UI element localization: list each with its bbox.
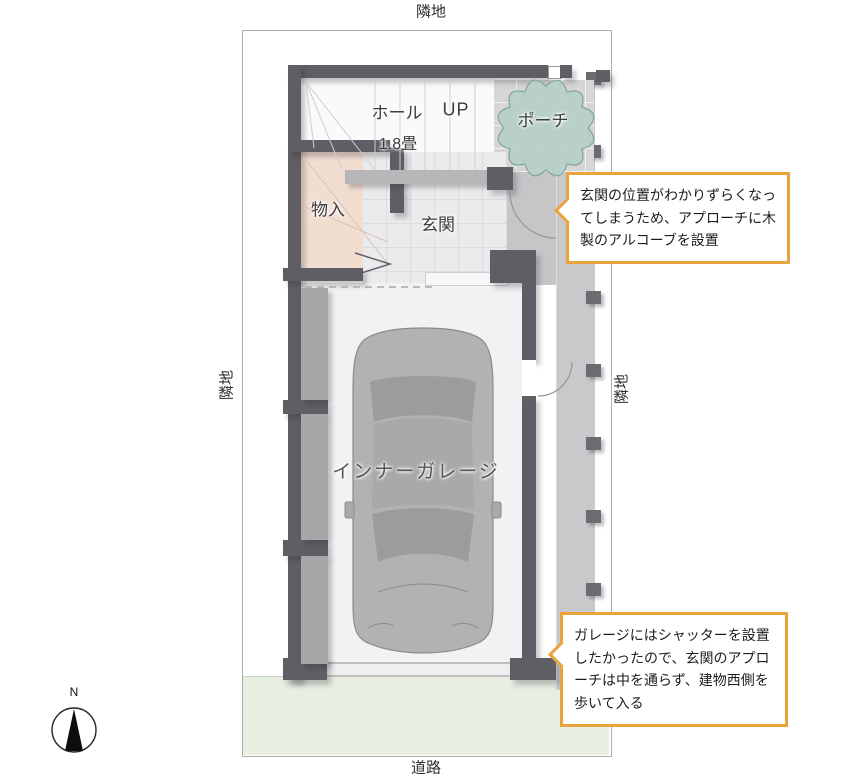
north-neighbor-label: 隣地: [416, 1, 446, 22]
wall-south-east: [510, 658, 556, 680]
wall-storage-bottom: [283, 268, 363, 281]
fence-post: [586, 437, 601, 450]
compass-north-label: N: [70, 685, 79, 699]
wall-west-pier1: [283, 400, 328, 414]
fence-post: [586, 364, 601, 377]
stairs-up-label: UP: [442, 100, 469, 121]
wall-entrance-pier: [487, 167, 513, 190]
road-label: 道路: [411, 757, 441, 778]
garage-side-door: [522, 360, 536, 396]
storage-label: 物入: [311, 196, 345, 221]
entrance-label: 玄関: [421, 211, 455, 236]
garage-label: インナーガレージ: [332, 457, 500, 484]
wall-north-stub: [560, 65, 572, 78]
wall-west-pier2: [283, 540, 328, 556]
garage-shelf-panel: [301, 414, 328, 540]
porch-post: [596, 70, 610, 82]
compass: [50, 704, 100, 756]
floor-plan-page: ホール 1.8畳 UP ポーチ 物入 玄関 インナーガレージ 隣地 道路 隣地 …: [0, 0, 867, 780]
fence-post: [586, 291, 601, 304]
garage-shelf-panel: [301, 556, 328, 664]
garage-shutter-callout: ガレージにはシャッターを設置したかったので、玄関のアプローチは中を通らず、建物西…: [560, 612, 788, 727]
hall-label: ホール: [372, 99, 423, 124]
east-neighbor-label: 隣地: [611, 374, 632, 404]
wall-east-upper: [522, 283, 536, 360]
compass-needle: [65, 709, 83, 751]
wall-north: [288, 65, 548, 78]
garage-shutter: [327, 662, 510, 677]
fence-post: [586, 510, 601, 523]
entrance-alcove-callout: 玄関の位置がわかりずらくなってしまうため、アプローチに木製のアルコーブを設置: [566, 172, 790, 264]
wall-storage-top: [288, 140, 390, 152]
wall-east-lower: [522, 396, 536, 658]
wall-west: [288, 65, 301, 680]
hall-size-label: 1.8畳: [379, 130, 417, 154]
shoe-cabinet: [345, 170, 487, 184]
road-area: [243, 676, 609, 755]
west-neighbor-label: 隣地: [216, 370, 237, 400]
entrance-alcove-callout-text: 玄関の位置がわかりずらくなってしまうため、アプローチに木製のアルコーブを設置: [580, 187, 776, 248]
wall-entrance-corner: [490, 250, 536, 283]
garage-shutter-callout-text: ガレージにはシャッターを設置したかったので、玄関のアプローチは中を通らず、建物西…: [574, 627, 770, 711]
porch-label: ポーチ: [518, 107, 569, 132]
fence-post: [586, 583, 601, 596]
garage-shelf-panel: [301, 288, 328, 400]
